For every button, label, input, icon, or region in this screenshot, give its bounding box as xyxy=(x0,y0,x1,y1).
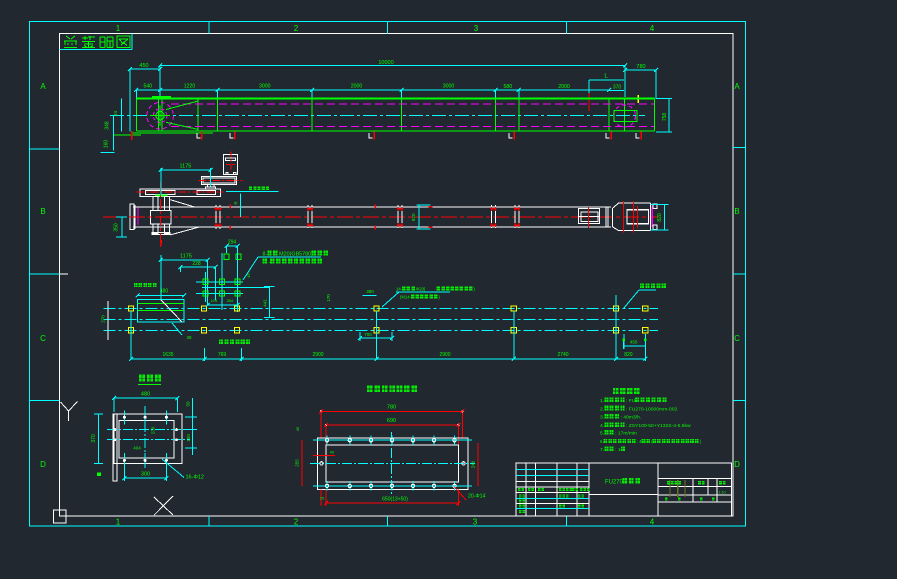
svg-text:450: 450 xyxy=(139,63,148,69)
svg-text:1: 1 xyxy=(116,24,121,33)
svg-text:50: 50 xyxy=(186,401,191,407)
svg-text:4.: 4. xyxy=(600,423,604,429)
svg-text:1220: 1220 xyxy=(184,84,196,90)
svg-text:D: D xyxy=(40,460,46,469)
svg-text:4: 4 xyxy=(650,518,655,527)
svg-text:2: 2 xyxy=(294,518,299,527)
svg-text:2: 2 xyxy=(294,24,299,33)
svg-text:3: 3 xyxy=(473,518,478,527)
svg-text:1635: 1635 xyxy=(162,352,173,358)
svg-text:16-Φ12: 16-Φ12 xyxy=(186,475,204,481)
svg-text:20-Φ14: 20-Φ14 xyxy=(468,494,486,500)
svg-text:1.: 1. xyxy=(600,398,604,404)
svg-text:84: 84 xyxy=(113,111,118,117)
svg-text:C: C xyxy=(40,334,46,343)
svg-text:769: 769 xyxy=(218,352,227,358)
svg-text:240: 240 xyxy=(471,460,476,468)
svg-text:370: 370 xyxy=(91,434,97,443)
svg-text:1: 1 xyxy=(116,518,121,527)
svg-text:404: 404 xyxy=(133,446,141,451)
svg-text:4: 4 xyxy=(650,24,655,33)
svg-text:2900: 2900 xyxy=(439,352,450,358)
svg-text:14-: 14- xyxy=(396,287,403,292)
svg-text:350: 350 xyxy=(114,223,120,232)
svg-text:A: A xyxy=(40,82,46,91)
svg-text:38: 38 xyxy=(187,335,193,340)
svg-text:3000: 3000 xyxy=(443,84,455,90)
svg-text:230: 230 xyxy=(151,426,156,434)
svg-text:255: 255 xyxy=(295,459,300,467)
svg-text:354: 354 xyxy=(226,298,233,303)
svg-text:3000: 3000 xyxy=(259,84,271,90)
svg-text:-: - xyxy=(268,260,270,266)
svg-text:Φ20(: Φ20( xyxy=(416,287,426,292)
svg-text:780: 780 xyxy=(387,405,396,411)
svg-text:294: 294 xyxy=(228,240,237,246)
svg-text:7.: 7. xyxy=(600,447,604,453)
svg-text:540: 540 xyxy=(143,84,152,90)
svg-text:441: 441 xyxy=(262,299,267,307)
svg-text:1:10: 1:10 xyxy=(719,491,726,495)
svg-text:5.: 5. xyxy=(600,431,604,437)
svg-text:1175: 1175 xyxy=(180,254,192,260)
svg-text:: FU270-10000mm-002: : FU270-10000mm-002 xyxy=(626,406,677,412)
svg-text:40: 40 xyxy=(330,450,335,455)
svg-text:370: 370 xyxy=(613,84,622,90)
svg-text:820: 820 xyxy=(657,213,663,222)
svg-text:820: 820 xyxy=(624,352,633,358)
svg-text:780: 780 xyxy=(636,64,645,70)
svg-text:B: B xyxy=(734,207,739,216)
svg-text:480: 480 xyxy=(141,392,150,398)
svg-text:1175: 1175 xyxy=(179,164,191,170)
svg-text:: 40m3/h.: : 40m3/h. xyxy=(621,415,642,421)
svg-text:758: 758 xyxy=(662,113,668,122)
svg-text:150: 150 xyxy=(186,434,191,442)
svg-text:2900: 2900 xyxy=(312,352,323,358)
svg-text:6.: 6. xyxy=(600,439,604,444)
svg-text:480: 480 xyxy=(160,289,169,295)
svg-text:(M14-: (M14- xyxy=(400,295,412,300)
svg-text:450: 450 xyxy=(630,340,638,345)
svg-text:: ZSY100-50+Y132S-4-5.5kw: : ZSY100-50+Y132S-4-5.5kw xyxy=(626,423,691,429)
svg-text:B: B xyxy=(40,207,45,216)
svg-text:348: 348 xyxy=(105,121,111,130)
svg-text:228: 228 xyxy=(192,261,201,267)
svg-text:C: C xyxy=(734,334,740,343)
svg-text:820: 820 xyxy=(411,213,416,221)
svg-text:: 1: : 1 xyxy=(615,447,621,453)
svg-text:FU270: FU270 xyxy=(605,480,624,486)
svg-text:A: A xyxy=(734,82,740,91)
svg-text:: FU: : FU xyxy=(626,398,636,404)
svg-text:45: 45 xyxy=(295,426,300,431)
svg-text:380: 380 xyxy=(366,289,374,294)
svg-text:270: 270 xyxy=(101,315,106,323)
svg-text:300: 300 xyxy=(141,472,150,478)
svg-text:3: 3 xyxy=(474,24,479,33)
svg-text:160: 160 xyxy=(104,140,110,149)
svg-text:690: 690 xyxy=(387,418,396,424)
svg-text:: 17m/min: : 17m/min xyxy=(615,431,637,437)
svg-text:: 4: : 4 xyxy=(637,439,642,444)
svg-text:D: D xyxy=(734,460,740,469)
svg-text:2.: 2. xyxy=(600,406,604,412)
svg-text:2740: 2740 xyxy=(557,352,568,358)
svg-text:700: 700 xyxy=(364,332,372,337)
svg-text:104: 104 xyxy=(210,298,217,303)
svg-text:2000: 2000 xyxy=(351,84,363,90)
svg-text:650(13×50): 650(13×50) xyxy=(382,497,408,503)
svg-text:170: 170 xyxy=(326,294,331,302)
svg-text:10000: 10000 xyxy=(378,60,393,66)
svg-text:25: 25 xyxy=(320,497,324,501)
svg-text:580: 580 xyxy=(503,84,512,90)
svg-text:3.: 3. xyxy=(600,415,604,421)
svg-text:45: 45 xyxy=(246,273,251,278)
svg-text:2000: 2000 xyxy=(558,84,570,90)
